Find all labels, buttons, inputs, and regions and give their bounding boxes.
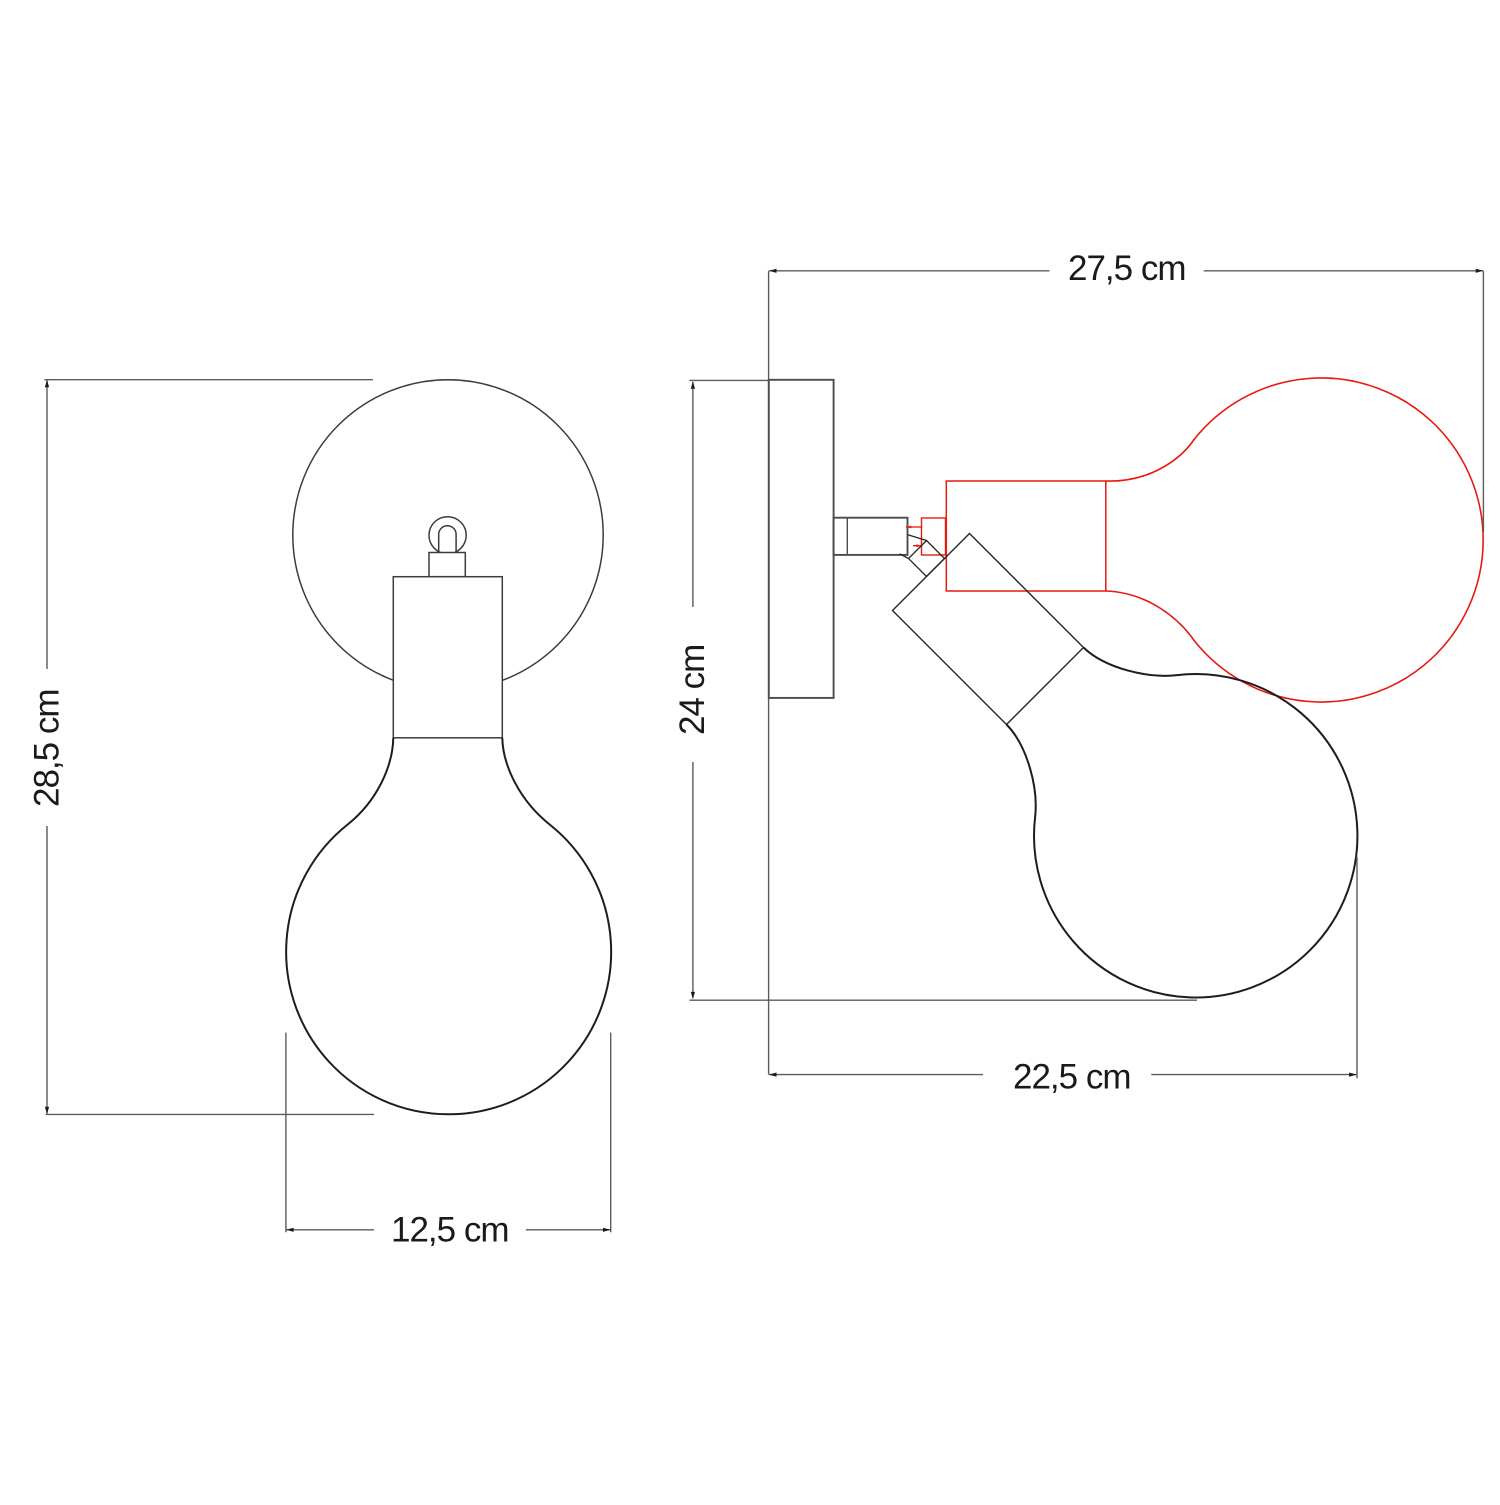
svg-text:24 cm: 24 cm bbox=[673, 645, 712, 735]
svg-text:28,5 cm: 28,5 cm bbox=[28, 690, 67, 808]
svg-text:27,5 cm: 27,5 cm bbox=[1068, 249, 1186, 288]
svg-text:12,5 cm: 12,5 cm bbox=[391, 1211, 509, 1250]
svg-text:22,5 cm: 22,5 cm bbox=[1013, 1058, 1131, 1097]
